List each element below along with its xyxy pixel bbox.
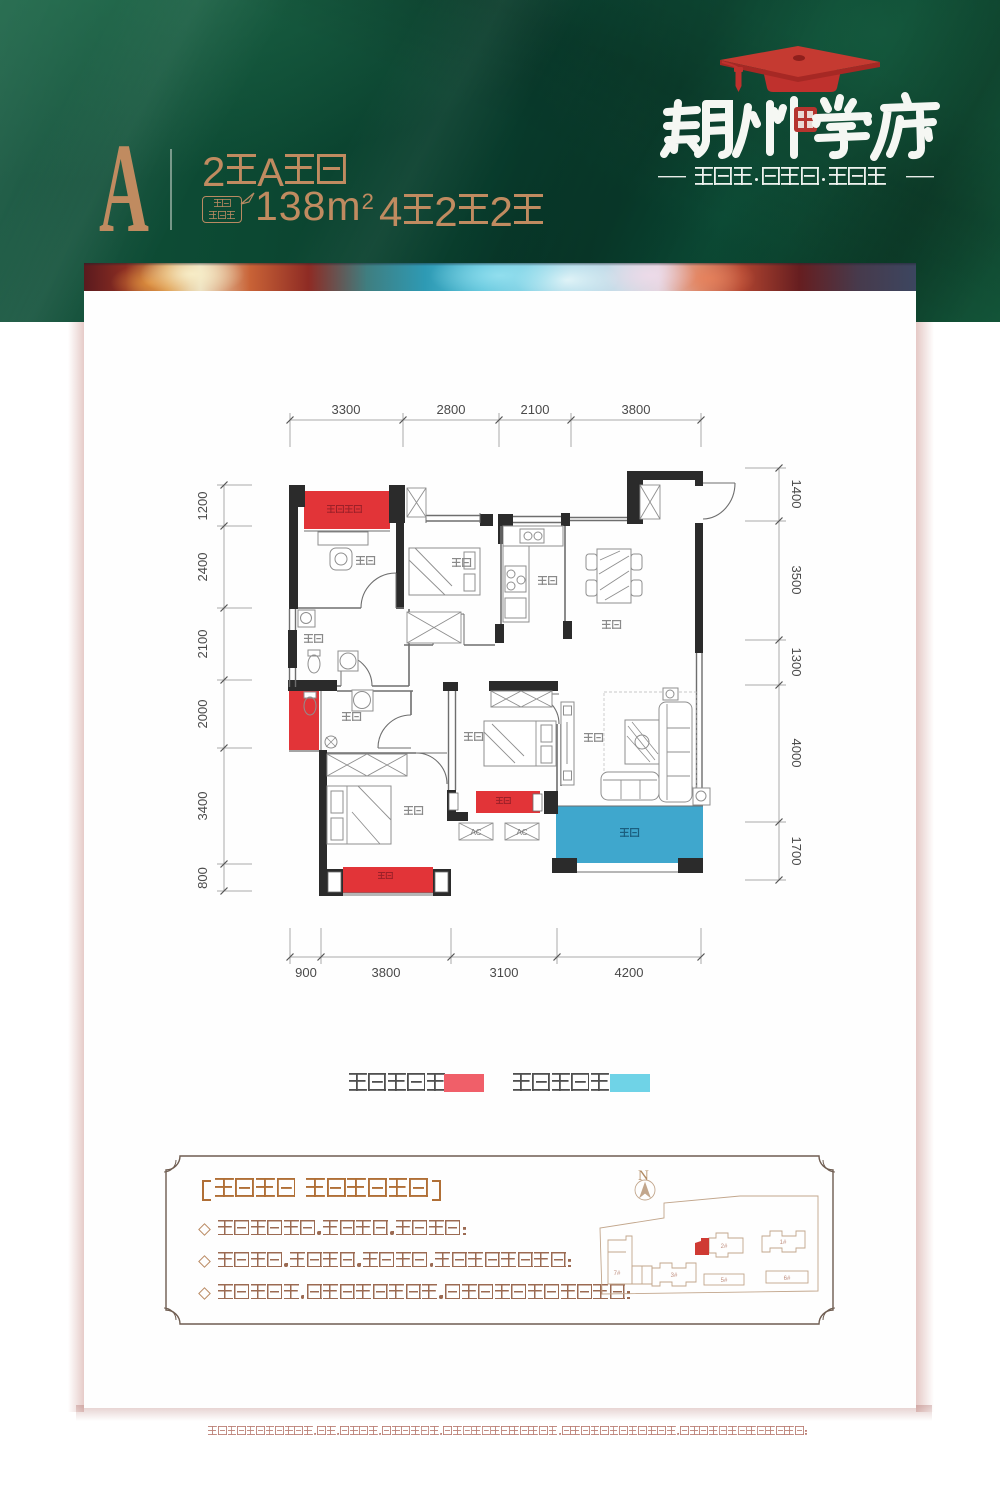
svg-text:800: 800 bbox=[195, 867, 210, 889]
svg-text:2800: 2800 bbox=[437, 402, 466, 417]
svg-text:N: N bbox=[638, 1168, 649, 1184]
svg-text:3800: 3800 bbox=[622, 402, 651, 417]
svg-text:2400: 2400 bbox=[195, 553, 210, 582]
svg-text:2#: 2# bbox=[721, 1244, 728, 1250]
svg-text:3100: 3100 bbox=[490, 965, 519, 980]
svg-text:AC: AC bbox=[470, 828, 481, 837]
svg-text:3400: 3400 bbox=[195, 792, 210, 821]
svg-text:2100: 2100 bbox=[195, 630, 210, 659]
svg-text:3#: 3# bbox=[671, 1273, 678, 1279]
svg-text:1300: 1300 bbox=[789, 648, 804, 677]
svg-text:1400: 1400 bbox=[789, 480, 804, 509]
svg-text:1700: 1700 bbox=[789, 837, 804, 866]
svg-text:AC: AC bbox=[516, 828, 527, 837]
svg-text:6#: 6# bbox=[784, 1276, 791, 1282]
svg-text:2000: 2000 bbox=[195, 700, 210, 729]
svg-text:1200: 1200 bbox=[195, 492, 210, 521]
svg-text:7#: 7# bbox=[614, 1271, 621, 1277]
svg-text:4000: 4000 bbox=[789, 739, 804, 768]
svg-text:3800: 3800 bbox=[372, 965, 401, 980]
svg-text:900: 900 bbox=[295, 965, 317, 980]
svg-text:5#: 5# bbox=[721, 1278, 728, 1284]
svg-text:3300: 3300 bbox=[332, 402, 361, 417]
svg-text:3500: 3500 bbox=[789, 566, 804, 595]
svg-text:4200: 4200 bbox=[615, 965, 644, 980]
svg-text:1#: 1# bbox=[780, 1240, 787, 1246]
svg-text:2100: 2100 bbox=[521, 402, 550, 417]
